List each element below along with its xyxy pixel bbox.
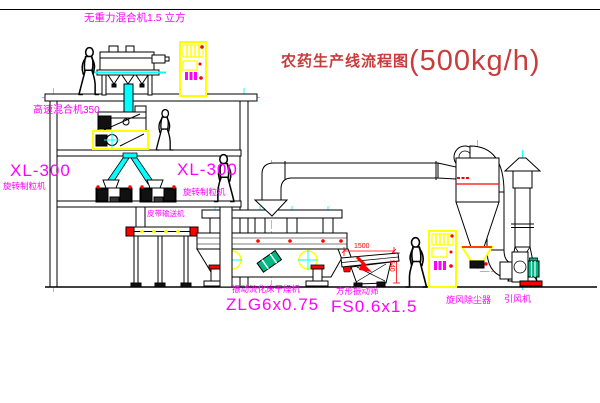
person-figure-second-floor xyxy=(156,110,173,150)
title-text: 农药生产线流程图 xyxy=(281,50,409,76)
label-dryer-name: 振动流化床干燥机 xyxy=(232,285,300,294)
label-granulator-right-name: 旋转制粒机 xyxy=(183,188,226,197)
label-granulator-right-model: XL-300 xyxy=(177,161,238,178)
exhaust-duct xyxy=(262,161,456,200)
person-figure-ground xyxy=(406,238,427,287)
title-capacity: (500kg/h) xyxy=(409,48,541,76)
control-cabinet-ground xyxy=(429,231,456,287)
gravityless-mixer xyxy=(92,46,169,112)
label-screen-model: FS0.6x1.5 xyxy=(331,298,418,315)
y-chute xyxy=(105,153,155,184)
building-middle-column xyxy=(220,207,232,287)
process-flow-diagram: 农药生产线流程图 (500kg/h) 无重力混合机1.5 立方 高速混合机350… xyxy=(0,0,600,403)
granulator-right xyxy=(140,180,176,202)
label-fan: 引风机 xyxy=(504,295,531,304)
label-gravityless-mixer: 无重力混合机1.5 立方 xyxy=(84,13,186,24)
drawing-title: 农药生产线流程图 (500kg/h) xyxy=(281,48,541,76)
control-cabinet-roof xyxy=(180,42,206,96)
label-screen-name: 方形振动筛 xyxy=(336,287,379,296)
granulator-discharge-pipe xyxy=(136,207,145,227)
label-cyclone: 旋风除尘器 xyxy=(446,296,491,305)
label-high-speed-mixer: 高速混合机350 xyxy=(33,106,100,116)
label-dryer-model: ZLG6x0.75 xyxy=(226,296,319,313)
induced-draft-fan xyxy=(500,252,542,286)
person-figure-roof xyxy=(79,48,98,95)
belt-conveyor xyxy=(126,227,198,287)
high-speed-mixer xyxy=(93,106,148,149)
label-granulator-left-model: XL-300 xyxy=(10,162,71,179)
label-belt-conveyor: 皮带输送机 xyxy=(147,210,185,218)
dimension-screen-height: 540 xyxy=(388,260,395,272)
granulator-left xyxy=(96,180,132,202)
dimension-screen-length: 1500 xyxy=(354,243,370,250)
label-granulator-left-name: 旋转制粒机 xyxy=(3,182,46,191)
cyclone-separator xyxy=(454,146,516,279)
